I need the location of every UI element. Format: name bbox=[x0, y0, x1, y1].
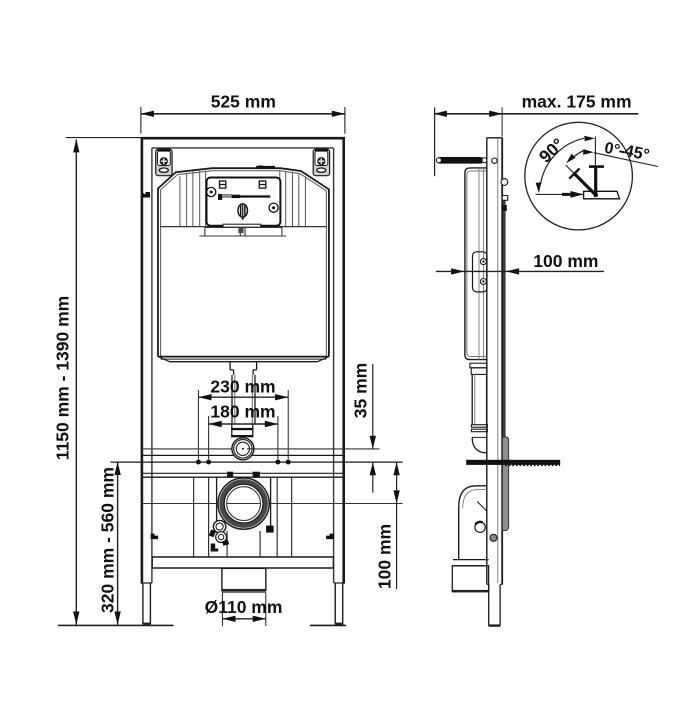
svg-text:35 mm: 35 mm bbox=[351, 363, 371, 418]
svg-text:Ø110 mm: Ø110 mm bbox=[205, 597, 283, 617]
svg-text:100 mm: 100 mm bbox=[533, 251, 598, 271]
svg-text:180 mm: 180 mm bbox=[210, 402, 275, 422]
svg-text:230 mm: 230 mm bbox=[210, 376, 275, 396]
svg-text:1150 mm - 1390 mm: 1150 mm - 1390 mm bbox=[53, 296, 73, 460]
svg-text:320 mm - 560 mm: 320 mm - 560 mm bbox=[98, 467, 118, 613]
svg-text:max. 175 mm: max. 175 mm bbox=[522, 92, 632, 112]
svg-text:100 mm: 100 mm bbox=[374, 524, 394, 589]
svg-text:525 mm: 525 mm bbox=[211, 91, 276, 111]
